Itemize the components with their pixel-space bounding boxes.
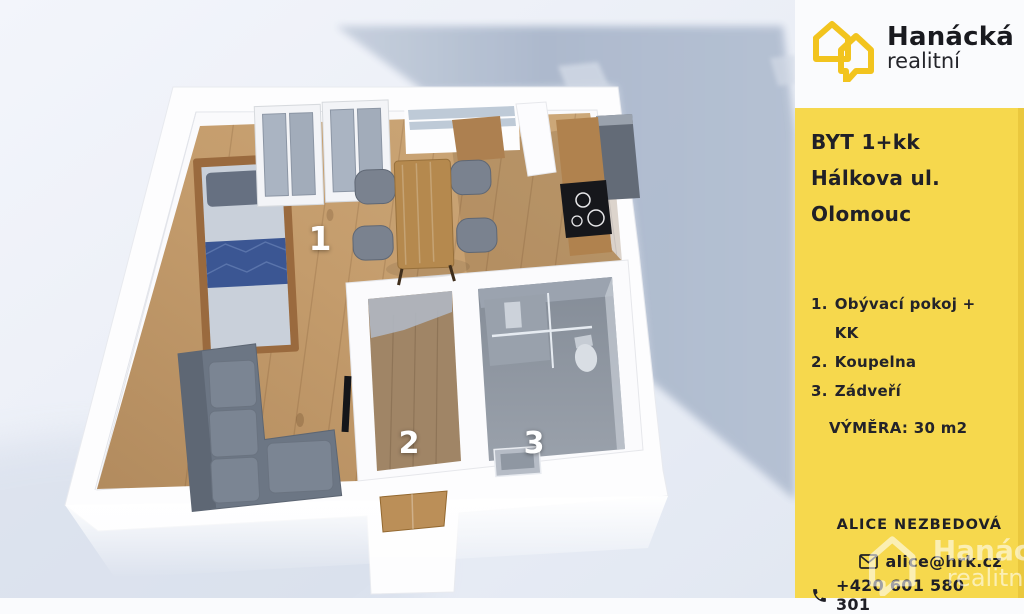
brand-logo: Hanácká realitní [810, 14, 1014, 82]
agent-email: alice@hrk.cz [886, 552, 1003, 571]
floorplan-scene: 1 2 3 [0, 0, 795, 598]
agent-email-row: alice@hrk.cz [811, 552, 1004, 571]
brand-house-icon [810, 14, 876, 82]
sofa-chaise [267, 440, 334, 493]
room-number-2: 2 [399, 426, 420, 461]
listing-type: BYT 1+kk [811, 124, 1004, 160]
dining-chair [355, 169, 396, 204]
room-list-item: 1. Obývací pokoj + KK [811, 290, 1004, 348]
brand-name: Hanácká [887, 24, 1014, 51]
agent-phone-row: +420 601 580 301 [811, 576, 1004, 614]
entrance-door [380, 491, 447, 532]
listing-city: Olomouc [811, 196, 1004, 232]
room-number-1: 1 [309, 219, 332, 258]
room-label: Obývací pokoj + KK [835, 290, 1004, 348]
room-number-3: 3 [524, 426, 545, 461]
listing-title: BYT 1+kk Hálkova ul. Olomouc [811, 124, 1004, 232]
dining-chair [352, 225, 393, 260]
floorplan-render: 1 2 3 [0, 0, 795, 598]
agent-phone: +420 601 580 301 [836, 576, 1002, 614]
area-label: VÝMĚRA: 30 m2 [811, 419, 1004, 437]
room-number: 2. [811, 348, 828, 377]
agent-name: ALICE NEZBEDOVÁ [811, 517, 1004, 533]
dining-chair [450, 160, 491, 195]
phone-icon [811, 587, 828, 604]
room-list-item: 3. Zádveří [811, 377, 1004, 406]
room-3 [478, 277, 625, 477]
listing-street: Hálkova ul. [811, 160, 1004, 196]
agent-contacts: alice@hrk.cz +420 601 580 301 [811, 552, 1004, 614]
room-label: Koupelna [835, 348, 917, 377]
room-number: 3. [811, 377, 828, 406]
dining-chair [456, 218, 497, 253]
room-list: 1. Obývací pokoj + KK 2. Koupelna 3. Zád… [811, 290, 1004, 406]
listing-panel: BYT 1+kk Hálkova ul. Olomouc 1. Obývací … [795, 108, 1024, 598]
email-icon [859, 554, 878, 569]
room-number: 1. [811, 290, 828, 348]
kitchen-cabinet-left [452, 116, 505, 162]
room-list-item: 2. Koupelna [811, 348, 1004, 377]
cooktop [560, 180, 612, 238]
room-label: Zádveří [835, 377, 901, 406]
brand-subname: realitní [887, 51, 1014, 73]
